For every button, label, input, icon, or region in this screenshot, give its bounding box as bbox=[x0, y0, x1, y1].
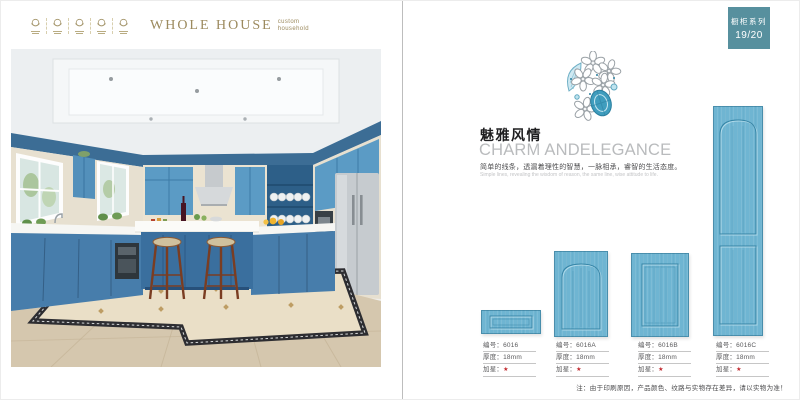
flower-brooch-illustration bbox=[557, 51, 623, 125]
award-emblems bbox=[27, 18, 132, 34]
series-title-en: CHARM ANDELEGANCE bbox=[479, 141, 671, 160]
spec-star: 加星：★ bbox=[638, 366, 691, 377]
product-spec-6016B: 编号：6016B 厚度：18mm 加星：★ bbox=[638, 342, 691, 379]
spec-code: 编号：6016 bbox=[483, 342, 536, 352]
cabinet-door-6016A bbox=[554, 251, 608, 337]
star-icon: ★ bbox=[658, 367, 664, 373]
award-emblem-icon bbox=[90, 18, 110, 34]
brand-name: WHOLE HOUSE bbox=[150, 18, 273, 34]
spec-code: 编号：6016C bbox=[716, 342, 769, 352]
series-badge-title: 橱柜系列 bbox=[728, 16, 770, 27]
brand-subtitle: custom household bbox=[278, 19, 309, 33]
brand-subtitle-line2: household bbox=[278, 26, 309, 32]
award-emblem-icon bbox=[68, 18, 88, 34]
series-badge-page-number: 19/20 bbox=[728, 30, 770, 41]
award-emblem-icon bbox=[46, 18, 66, 34]
brand-subtitle-line1: custom bbox=[278, 19, 300, 25]
star-icon: ★ bbox=[503, 367, 509, 373]
spec-thickness: 厚度：18mm bbox=[638, 354, 691, 364]
product-spec-6016C: 编号：6016C 厚度：18mm 加星：★ bbox=[716, 342, 769, 379]
print-disclaimer-note: 注：由于印刷原因，产品颜色、纹路与实物存在差异，请以实物为准！ bbox=[576, 382, 787, 392]
cabinet-drawer-front-6016 bbox=[481, 310, 541, 334]
award-emblem-icon bbox=[112, 18, 132, 34]
series-description-en: Simple lines, revealing the wisdom of re… bbox=[480, 172, 658, 178]
spec-code: 编号：6016A bbox=[556, 342, 609, 352]
star-icon: ★ bbox=[736, 367, 742, 373]
series-description-cn: 简单的线条，透漏着理性的智慧，一脉相承，睿智的生活态度。 bbox=[480, 162, 682, 172]
star-icon: ★ bbox=[576, 367, 582, 373]
page-divider bbox=[402, 1, 403, 400]
spec-code: 编号：6016B bbox=[638, 342, 691, 352]
spec-thickness: 厚度：18mm bbox=[556, 354, 609, 364]
product-spec-6016: 编号：6016 厚度：18mm 加星：★ bbox=[483, 342, 536, 379]
award-emblem-icon bbox=[27, 18, 44, 34]
spec-star: 加星：★ bbox=[556, 366, 609, 377]
brand-logo: WHOLE HOUSE custom household bbox=[27, 13, 309, 39]
spec-star: 加星：★ bbox=[483, 366, 536, 377]
kitchen-photo bbox=[11, 49, 381, 367]
spec-star: 加星：★ bbox=[716, 366, 769, 377]
spec-thickness: 厚度：18mm bbox=[483, 354, 536, 364]
cabinet-door-6016C bbox=[713, 106, 763, 336]
spec-thickness: 厚度：18mm bbox=[716, 354, 769, 364]
product-spec-6016A: 编号：6016A 厚度：18mm 加星：★ bbox=[556, 342, 609, 379]
catalog-spread: WHOLE HOUSE custom household bbox=[0, 0, 800, 400]
series-badge: 橱柜系列 19/20 bbox=[728, 7, 770, 49]
cabinet-door-6016B bbox=[631, 253, 689, 337]
